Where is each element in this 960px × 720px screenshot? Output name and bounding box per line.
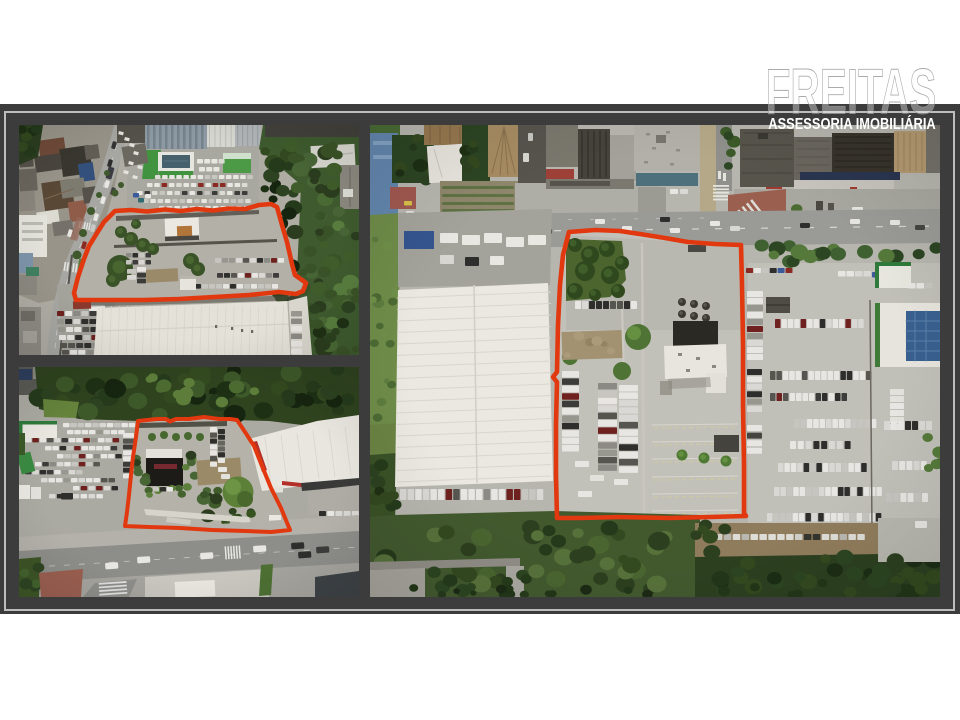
svg-text:ASSESSORIA IMOBILIÁRIA: ASSESSORIA IMOBILIÁRIA [768, 115, 935, 133]
